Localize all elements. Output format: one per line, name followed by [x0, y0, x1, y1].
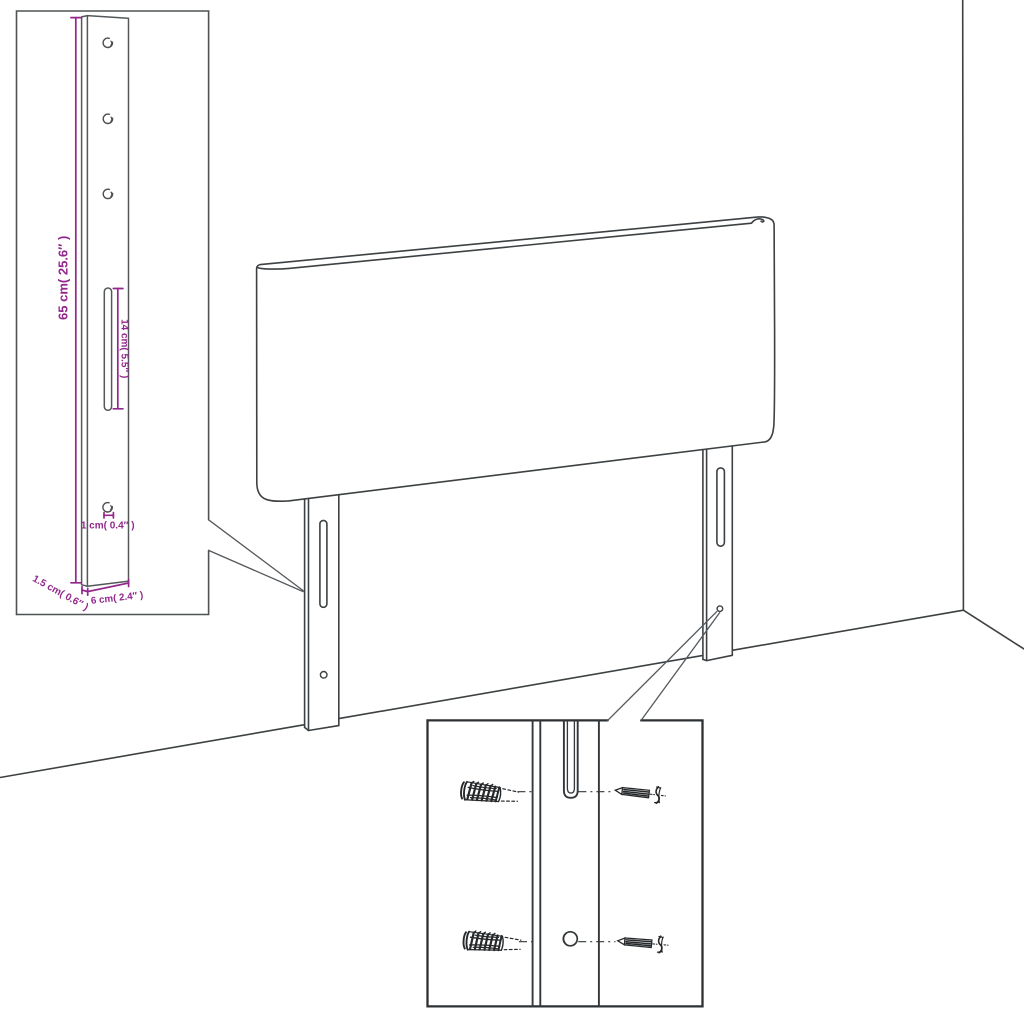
- svg-text:65 cm( 25.6″ ): 65 cm( 25.6″ ): [55, 236, 70, 320]
- svg-text:14 cm( 5.5″ ): 14 cm( 5.5″ ): [118, 319, 129, 378]
- svg-text:1 cm( 0.4″ ): 1 cm( 0.4″ ): [81, 521, 135, 532]
